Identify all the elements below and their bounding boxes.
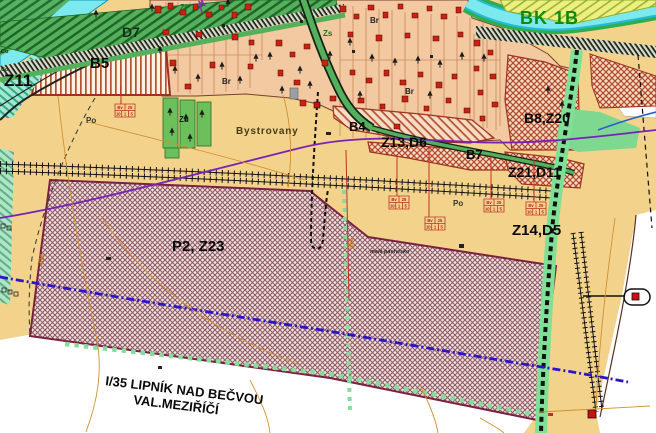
table-cell: Bv — [391, 197, 397, 202]
table-cell: Bv — [427, 218, 433, 223]
zone-label-br-1: Br — [370, 16, 379, 25]
table-cell: 25 — [539, 203, 544, 208]
table-cell: 10 — [527, 210, 532, 215]
land-label-co-2: Co — [1, 67, 9, 73]
table-cell: 25 — [402, 197, 407, 202]
zone-label-b5: B5 — [90, 55, 109, 72]
zone-label-p2-z23: P2, Z23 — [172, 238, 225, 255]
zone-label-z21-d11: Z21,D11 — [508, 164, 561, 180]
zone-label-zs: Zs — [323, 29, 333, 38]
zone-label-d7: D7 — [122, 24, 140, 40]
zoning-map-canvas[interactable]: Bv 25 10 1 5 Bv 25 10 1 5 Bv 25 10 1 5 — [0, 0, 656, 433]
land-label-po-1: Po — [86, 116, 96, 125]
land-label-co-1: Co — [1, 49, 9, 55]
red-node-marker — [632, 293, 639, 300]
table-cell: Bv — [486, 200, 492, 205]
table-cell: Bv — [528, 203, 534, 208]
zone-label-b7: B7 — [466, 147, 483, 162]
red-node-marker-village — [314, 102, 320, 108]
zone-label-z13-d6: Z13,D6 — [381, 134, 427, 150]
place-label-bystrovany: Bystrovany — [236, 126, 298, 137]
red-node-marker-south — [588, 410, 596, 418]
gray-building — [290, 88, 298, 99]
zone-label-z14-d5: Z14,D5 — [512, 222, 561, 239]
field-name-label: malé pastvisko — [370, 249, 410, 255]
land-label-po-2: Po — [453, 199, 463, 208]
table-cell: 10 — [116, 112, 121, 117]
zone-label-zl: Zl — [180, 3, 187, 12]
zone-label-z11: Z11 — [4, 71, 32, 90]
zone-label-zu: Zu — [179, 115, 189, 124]
table-cell: Bv — [117, 105, 123, 110]
table-cell: 10 — [485, 207, 490, 212]
zone-label-bk1b: BK 1B — [520, 8, 579, 28]
zone-label-br-2: Br — [222, 77, 231, 86]
zone-label-b4: B4 — [349, 119, 366, 134]
table-cell: 25 — [438, 218, 443, 223]
red-tick — [548, 413, 553, 416]
zone-label-br-3: Br — [405, 87, 414, 96]
zone-label-b8-z20: B8,Z20 — [524, 110, 570, 126]
table-cell: 25 — [497, 200, 502, 205]
table-cell: 10 — [390, 204, 395, 209]
table-cell: 25 — [128, 105, 133, 110]
table-cell: 10 — [426, 225, 431, 230]
